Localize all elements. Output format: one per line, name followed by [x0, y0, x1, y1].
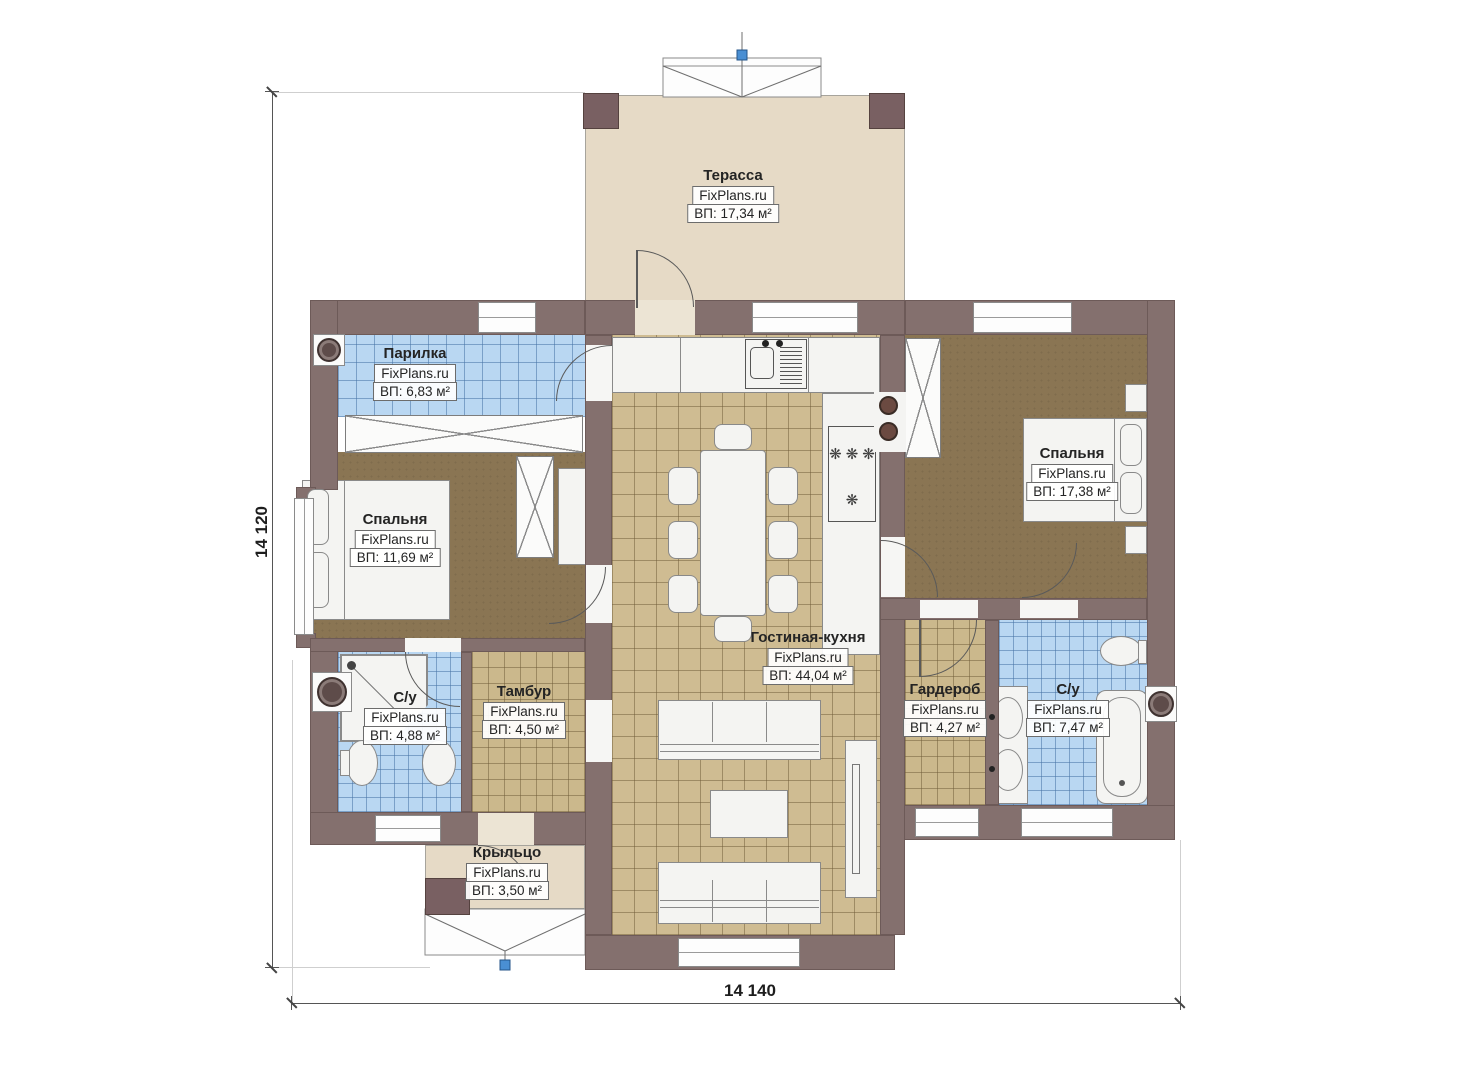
sofa: [658, 862, 821, 924]
room-area: ВП: 7,47 м²: [1026, 718, 1110, 737]
room-label-steam-room: Парилка FixPlans.ru ВП: 6,83 м²: [373, 346, 457, 401]
sink-drainer: [780, 344, 802, 384]
room-area: ВП: 4,27 м²: [903, 718, 987, 737]
sink-faucet: [776, 340, 783, 347]
room-label-bathroom-left: С/у FixPlans.ru ВП: 4,88 м²: [363, 690, 447, 745]
wall-segment: [310, 300, 585, 335]
window: [375, 815, 441, 842]
chair: [768, 467, 798, 505]
burner-icon: ❋: [829, 445, 842, 463]
room-area: ВП: 44,04 м²: [762, 666, 854, 685]
room-area: ВП: 17,34 м²: [687, 204, 779, 223]
toilet-tank: [340, 750, 350, 776]
watermark: FixPlans.ru: [692, 186, 774, 205]
terrace-stairs: [655, 18, 830, 100]
door-opening: [1020, 600, 1078, 618]
wall-segment: [310, 812, 602, 845]
wardrobe-cabinet: [516, 456, 554, 558]
sauna-stove: [313, 334, 345, 366]
bathtub-drain: [1119, 780, 1125, 786]
room-name: Терасса: [703, 168, 762, 184]
chimney-vent: [312, 672, 352, 712]
room-name: Спальня: [1040, 446, 1105, 462]
terrace-pillar: [869, 93, 905, 129]
wall-segment: [461, 652, 472, 812]
room-name: Крыльцо: [473, 845, 541, 861]
faucet: [989, 714, 995, 720]
door-opening: [478, 813, 534, 845]
window: [1021, 808, 1113, 837]
tv-screen: [852, 764, 860, 874]
watermark: FixPlans.ru: [767, 648, 849, 667]
burner-icon: ❋: [846, 445, 859, 463]
extension-line: [272, 967, 430, 968]
chair: [668, 467, 698, 505]
porch-pillar: [425, 878, 470, 915]
room-name: С/у: [393, 690, 416, 706]
floor-plan: 14 120 14 140: [0, 0, 1474, 1080]
porch-stairs: [420, 906, 595, 978]
hob-burner: [879, 422, 898, 441]
window: [915, 808, 979, 837]
room-name: С/у: [1056, 682, 1079, 698]
room-label-bathroom-right: С/у FixPlans.ru ВП: 7,47 м²: [1026, 682, 1110, 737]
pillow: [1120, 472, 1142, 514]
watermark: FixPlans.ru: [364, 708, 446, 727]
door-opening: [405, 638, 461, 652]
wall-segment: [310, 300, 338, 490]
sofa-line: [766, 702, 767, 742]
chair: [768, 521, 798, 559]
watermark: FixPlans.ru: [466, 863, 548, 882]
room-label-living-kitchen: Гостиная-кухня FixPlans.ru ВП: 44,04 м²: [751, 630, 866, 685]
dimension-line-vertical: [272, 92, 273, 968]
room-label-bedroom-right: Спальня FixPlans.ru ВП: 17,38 м²: [1026, 446, 1118, 501]
extension-line: [272, 92, 585, 93]
nightstand: [1125, 526, 1147, 554]
sink-faucet: [762, 340, 769, 347]
door-opening: [920, 600, 978, 618]
toilet: [1100, 636, 1142, 666]
sofa-line: [712, 702, 713, 742]
watermark: FixPlans.ru: [483, 702, 565, 721]
room-label-porch: Крыльцо FixPlans.ru ВП: 3,50 м²: [465, 845, 549, 900]
toilet-tank: [1138, 640, 1147, 664]
dimension-height-label: 14 120: [252, 482, 272, 582]
shower-head: [347, 661, 356, 670]
room-area: ВП: 3,50 м²: [465, 881, 549, 900]
window: [294, 498, 314, 635]
room-name: Гардероб: [910, 682, 981, 698]
room-label-terrace: Терасса FixPlans.ru ВП: 17,34 м²: [687, 168, 779, 223]
window: [752, 302, 858, 333]
washbasin: [422, 740, 456, 786]
wall-segment: [585, 335, 612, 935]
tv-stand: [845, 740, 877, 898]
chair: [668, 521, 698, 559]
stove: ❋❋ ❋❋: [828, 426, 876, 522]
extension-line: [292, 660, 293, 1003]
sink-bowl: [750, 347, 774, 379]
sofa-line: [660, 744, 819, 745]
watermark: FixPlans.ru: [1031, 464, 1113, 483]
extension-line: [1180, 840, 1181, 1003]
steam-bench: [345, 415, 583, 453]
dimension-line-horizontal: [292, 1003, 1180, 1004]
chair: [768, 575, 798, 613]
watermark: FixPlans.ru: [1027, 700, 1109, 719]
watermark: FixPlans.ru: [374, 364, 456, 383]
room-name: Спальня: [363, 512, 428, 528]
chair: [714, 616, 752, 642]
dining-table: [700, 450, 766, 616]
room-label-bedroom-left: Спальня FixPlans.ru ВП: 11,69 м²: [350, 512, 441, 567]
counter-divider: [680, 338, 681, 392]
toilet: [346, 740, 378, 786]
dimension-width-label: 14 140: [690, 981, 810, 1001]
room-area: ВП: 11,69 м²: [350, 548, 441, 567]
room-label-vestibule: Тамбур FixPlans.ru ВП: 4,50 м²: [482, 684, 566, 739]
wall-segment: [985, 620, 999, 805]
room-name: Тамбур: [497, 684, 551, 700]
sofa-line: [660, 900, 819, 901]
sofa-line: [660, 907, 819, 908]
room-name: Парилка: [384, 346, 447, 362]
door-leaf: [919, 620, 921, 677]
room-area: ВП: 4,50 м²: [482, 720, 566, 739]
door-opening: [586, 700, 612, 762]
watermark: FixPlans.ru: [904, 700, 986, 719]
chimney-vent: [1145, 686, 1177, 722]
wardrobe-cabinet: [905, 338, 941, 458]
burner-icon: ❋: [846, 491, 859, 509]
wall-segment: [1147, 300, 1175, 840]
faucet: [989, 766, 995, 772]
blanket-line: [344, 481, 345, 619]
coffee-table: [710, 790, 788, 838]
window: [478, 302, 536, 333]
nightstand: [1125, 384, 1147, 412]
burner-icon: ❋: [862, 445, 875, 463]
hob-burner: [879, 396, 898, 415]
room-area: ВП: 6,83 м²: [373, 382, 457, 401]
sofa-line: [660, 751, 819, 752]
room-area: ВП: 4,88 м²: [363, 726, 447, 745]
pillow: [1120, 424, 1142, 466]
chair: [714, 424, 752, 450]
room-area: ВП: 17,38 м²: [1026, 482, 1118, 501]
terrace-pillar: [583, 93, 619, 129]
room-label-wardrobe: Гардероб FixPlans.ru ВП: 4,27 м²: [903, 682, 987, 737]
window: [973, 302, 1072, 333]
window: [678, 938, 800, 967]
door-leaf: [636, 250, 638, 308]
watermark: FixPlans.ru: [354, 530, 436, 549]
sofa-line: [712, 880, 713, 922]
sofa-line: [766, 880, 767, 922]
room-name: Гостиная-кухня: [751, 630, 866, 646]
counter-divider: [808, 338, 809, 392]
chair: [668, 575, 698, 613]
